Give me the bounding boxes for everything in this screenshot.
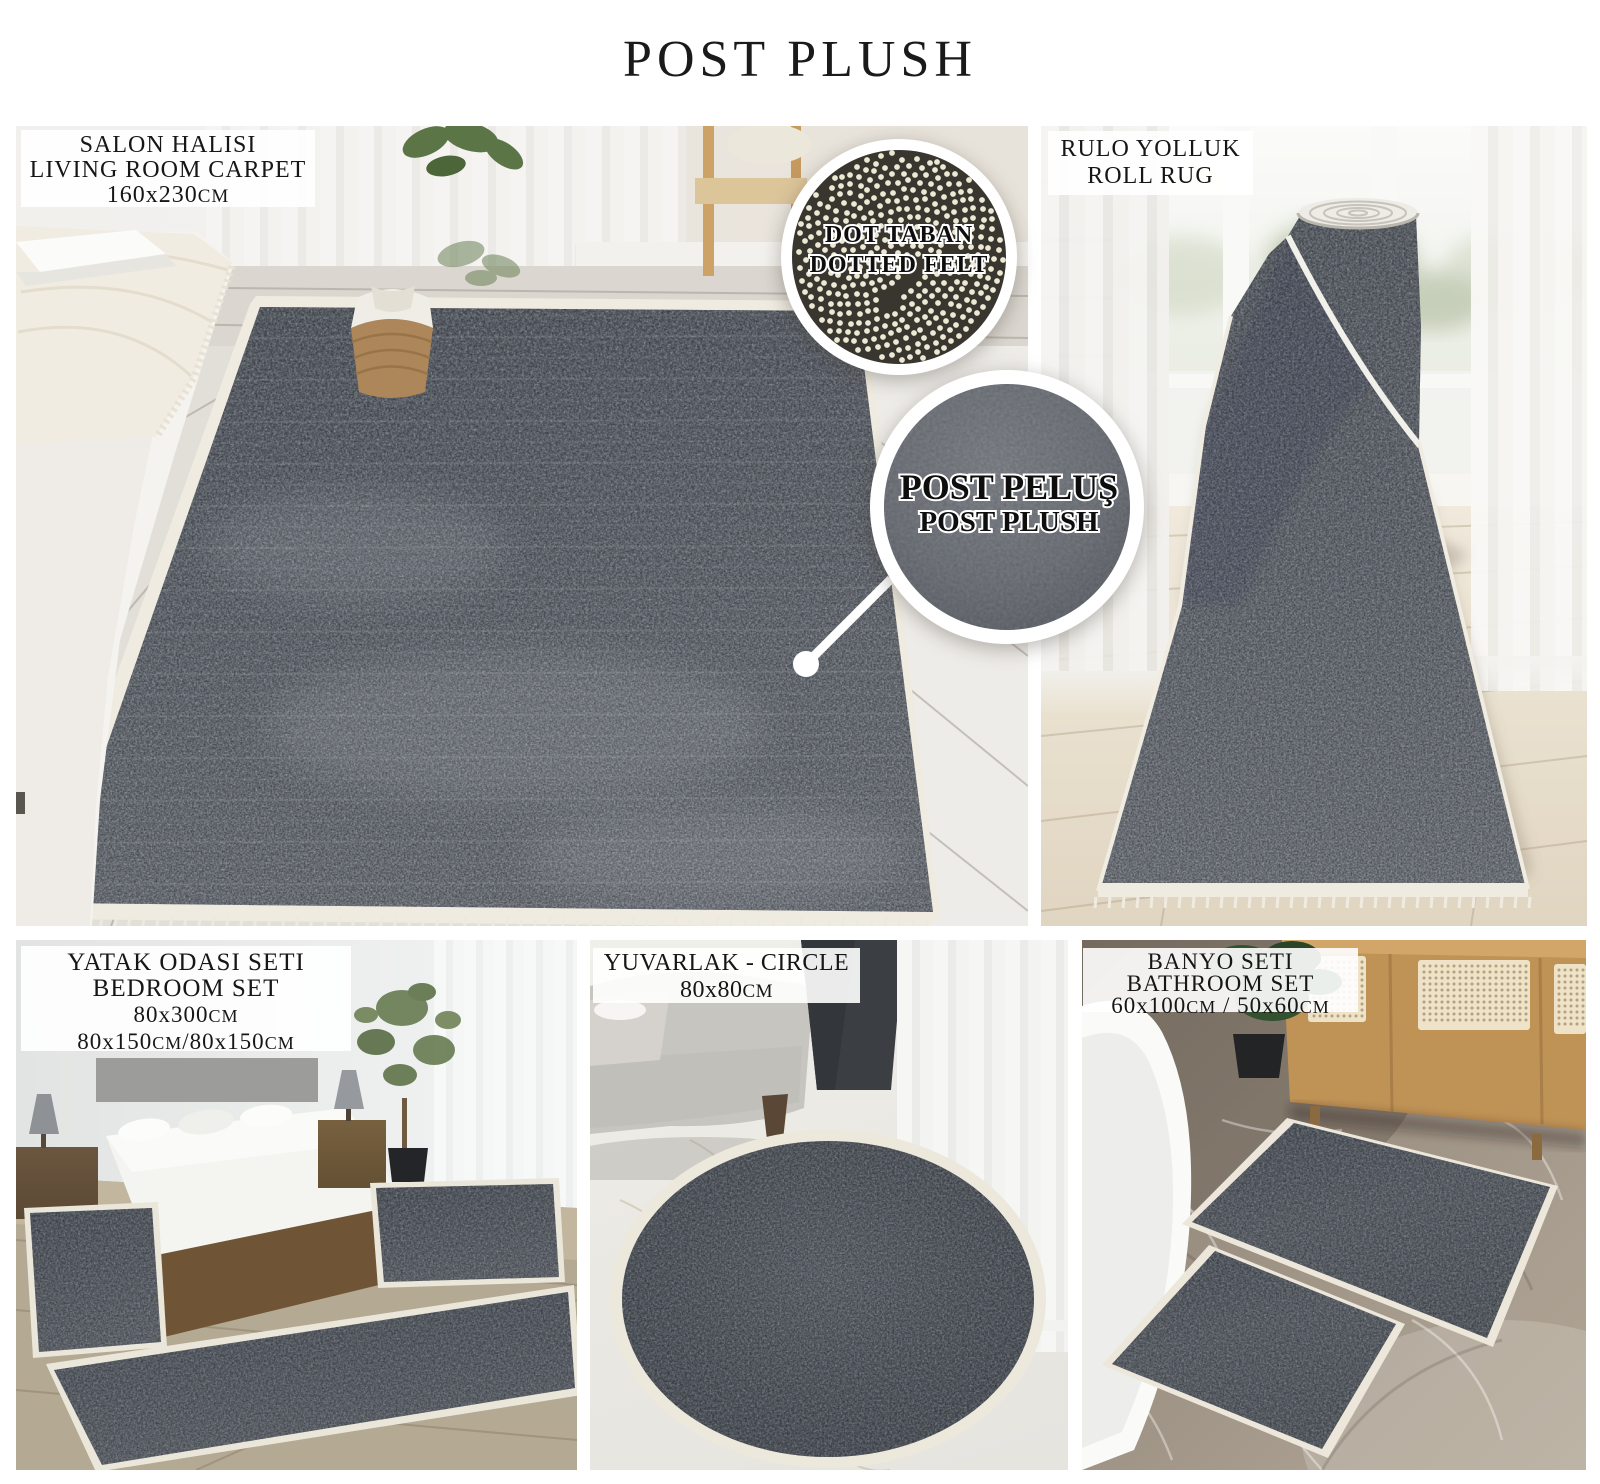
svg-text:POST PELUŞ: POST PELUŞ bbox=[900, 467, 1118, 507]
svg-text:POST PLUSH: POST PLUSH bbox=[919, 506, 1099, 538]
svg-text:DOT TABAN: DOT TABAN bbox=[825, 222, 973, 248]
svg-text:DOTTED FELT: DOTTED FELT bbox=[810, 252, 989, 278]
